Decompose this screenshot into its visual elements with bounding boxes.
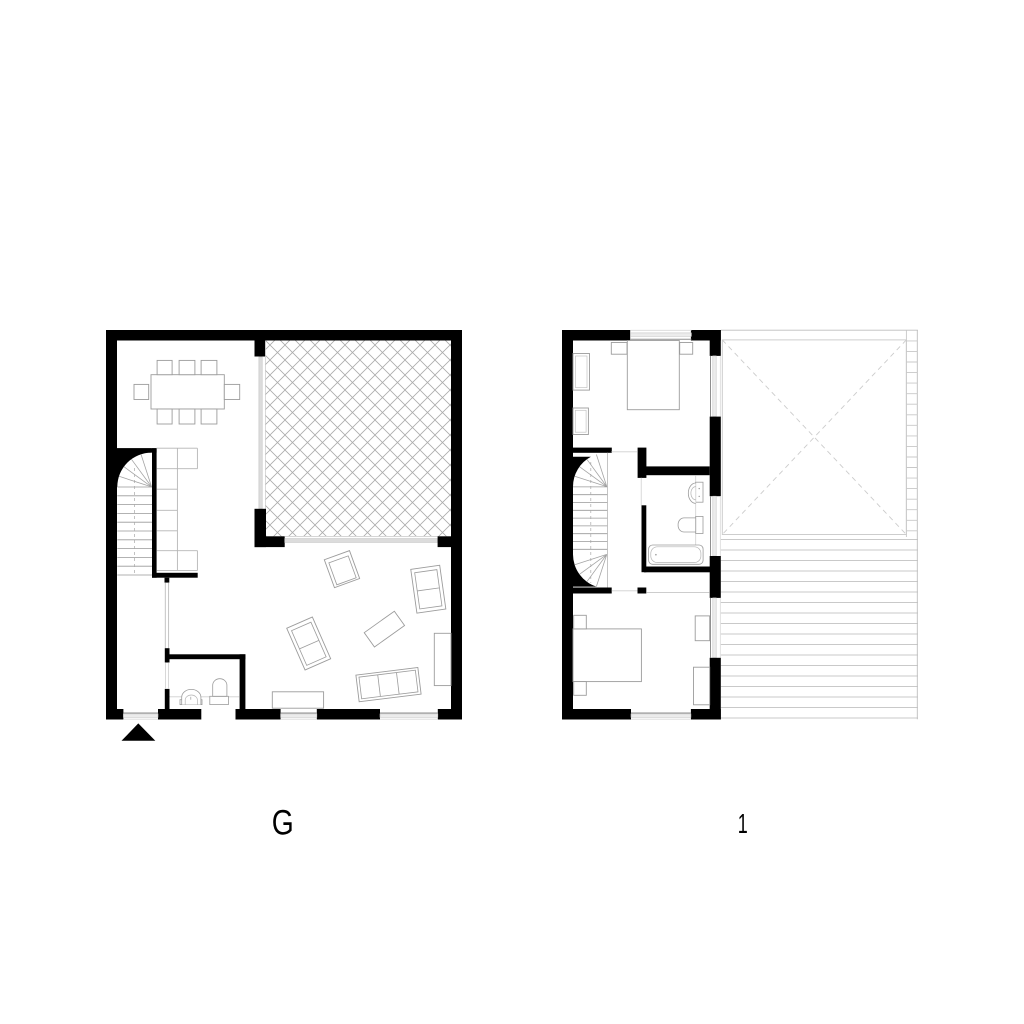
svg-text:G: G (272, 803, 294, 842)
svg-text:1: 1 (738, 808, 748, 839)
